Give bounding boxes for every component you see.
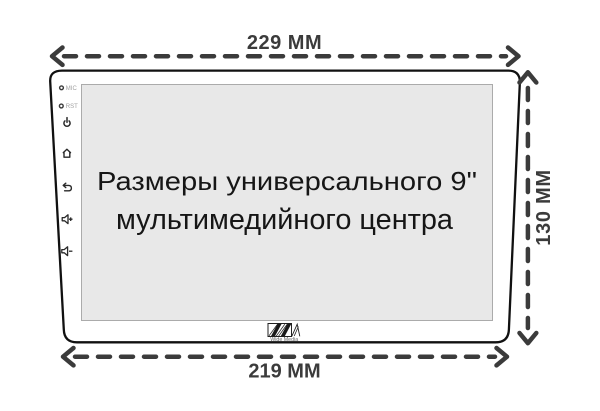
svg-text:Размеры универсального 9": Размеры универсального 9"	[97, 166, 477, 196]
svg-text:229 ММ: 229 ММ	[247, 32, 322, 54]
svg-text:130 ММ: 130 ММ	[533, 169, 555, 245]
svg-text:219 ММ: 219 ММ	[248, 361, 320, 383]
svg-text:MIC: MIC	[66, 86, 78, 92]
svg-text:Wide Media: Wide Media	[270, 337, 298, 343]
svg-text:RST: RST	[66, 104, 78, 110]
svg-text:мультимедийного центра: мультимедийного центра	[116, 204, 454, 236]
